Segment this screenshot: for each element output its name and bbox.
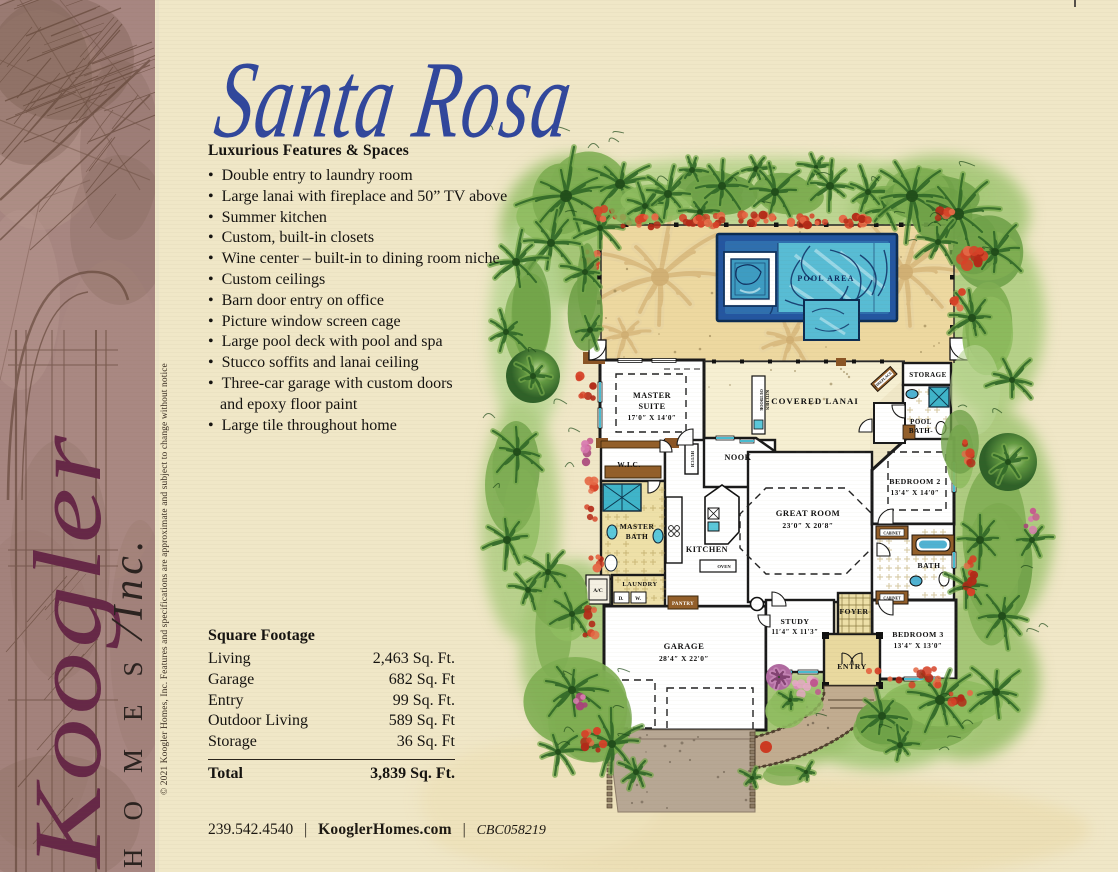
svg-text:W.: W. — [635, 597, 642, 602]
svg-text:STUDY: STUDY — [781, 617, 810, 626]
svg-text:POOL AREA: POOL AREA — [797, 274, 854, 283]
svg-text:CABINET: CABINET — [883, 532, 901, 536]
svg-text:MASTER: MASTER — [620, 522, 655, 531]
svg-text:13′4″ X 13′0″: 13′4″ X 13′0″ — [894, 642, 943, 650]
svg-text:MASTER: MASTER — [633, 391, 671, 400]
svg-text:OUTDOOR: OUTDOOR — [759, 389, 764, 412]
svg-text:BEDROOM 3: BEDROOM 3 — [892, 630, 944, 639]
svg-text:BATH: BATH — [918, 561, 941, 570]
svg-text:GARAGE: GARAGE — [664, 641, 705, 651]
svg-text:KITCHEN: KITCHEN — [686, 545, 728, 554]
svg-text:A/C: A/C — [593, 588, 603, 594]
svg-text:W.I.C.: W.I.C. — [617, 460, 640, 469]
svg-text:13′4″ X 14′0″: 13′4″ X 14′0″ — [891, 489, 940, 497]
svg-text:BATH-: BATH- — [909, 427, 933, 435]
svg-text:STORAGE: STORAGE — [909, 371, 947, 379]
svg-text:NOOK: NOOK — [724, 453, 751, 462]
svg-text:POOL: POOL — [910, 418, 932, 426]
svg-text:D.: D. — [619, 597, 625, 602]
svg-text:SUITE: SUITE — [638, 402, 665, 411]
svg-text:LAUNDRY: LAUNDRY — [622, 581, 657, 588]
svg-text:PANTRY: PANTRY — [672, 602, 694, 607]
svg-text:GREAT ROOM: GREAT ROOM — [776, 508, 841, 518]
svg-text:23′0″ X 20′8″: 23′0″ X 20′8″ — [782, 521, 833, 530]
svg-text:ENTRY: ENTRY — [837, 662, 867, 671]
svg-text:BATH: BATH — [626, 532, 648, 541]
svg-text:11′4″ X 11′3″: 11′4″ X 11′3″ — [772, 628, 819, 636]
svg-text:COVERED LANAI: COVERED LANAI — [771, 396, 859, 406]
svg-text:KITCHEN: KITCHEN — [765, 390, 770, 410]
svg-text:FOYER: FOYER — [839, 607, 868, 616]
svg-text:17′0″ X 14′0″: 17′0″ X 14′0″ — [628, 414, 677, 422]
svg-text:HUTCH: HUTCH — [690, 451, 695, 468]
svg-text:OVEN: OVEN — [717, 564, 731, 569]
svg-text:Koogler: Koogler — [15, 432, 121, 871]
svg-text:BEDROOM 2: BEDROOM 2 — [889, 477, 941, 486]
svg-text:28′4″ X 22′0″: 28′4″ X 22′0″ — [659, 654, 709, 663]
